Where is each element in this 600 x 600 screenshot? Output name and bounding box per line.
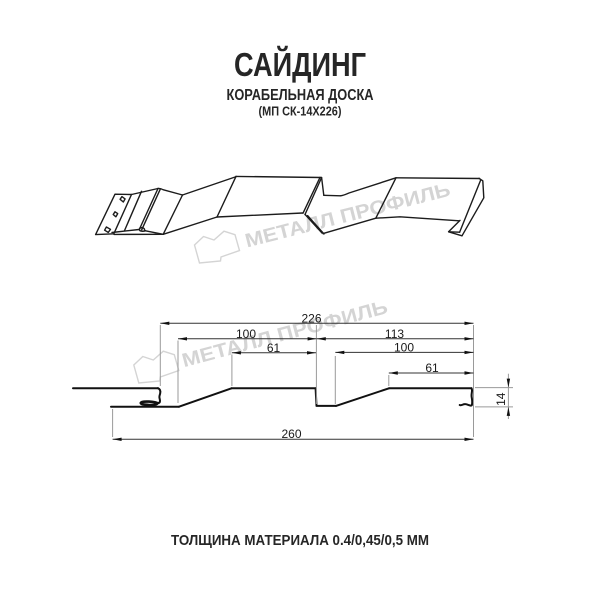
svg-text:(МП СК-14Х226): (МП СК-14Х226)	[259, 104, 342, 119]
svg-text:ТОЛЩИНА МАТЕРИАЛА 0.4/0,45/0,5: ТОЛЩИНА МАТЕРИАЛА 0.4/0,45/0,5 ММ	[171, 532, 429, 549]
svg-text:100: 100	[394, 340, 414, 354]
svg-text:САЙДИНГ: САЙДИНГ	[234, 45, 366, 83]
svg-text:100: 100	[236, 327, 256, 341]
svg-text:260: 260	[281, 427, 301, 441]
svg-text:КОРАБЕЛЬНАЯ ДОСКА: КОРАБЕЛЬНАЯ ДОСКА	[227, 87, 374, 104]
svg-text:113: 113	[385, 327, 404, 341]
svg-text:61: 61	[267, 341, 281, 355]
svg-text:14: 14	[494, 392, 508, 406]
svg-text:61: 61	[425, 361, 439, 375]
svg-text:226: 226	[301, 311, 321, 325]
